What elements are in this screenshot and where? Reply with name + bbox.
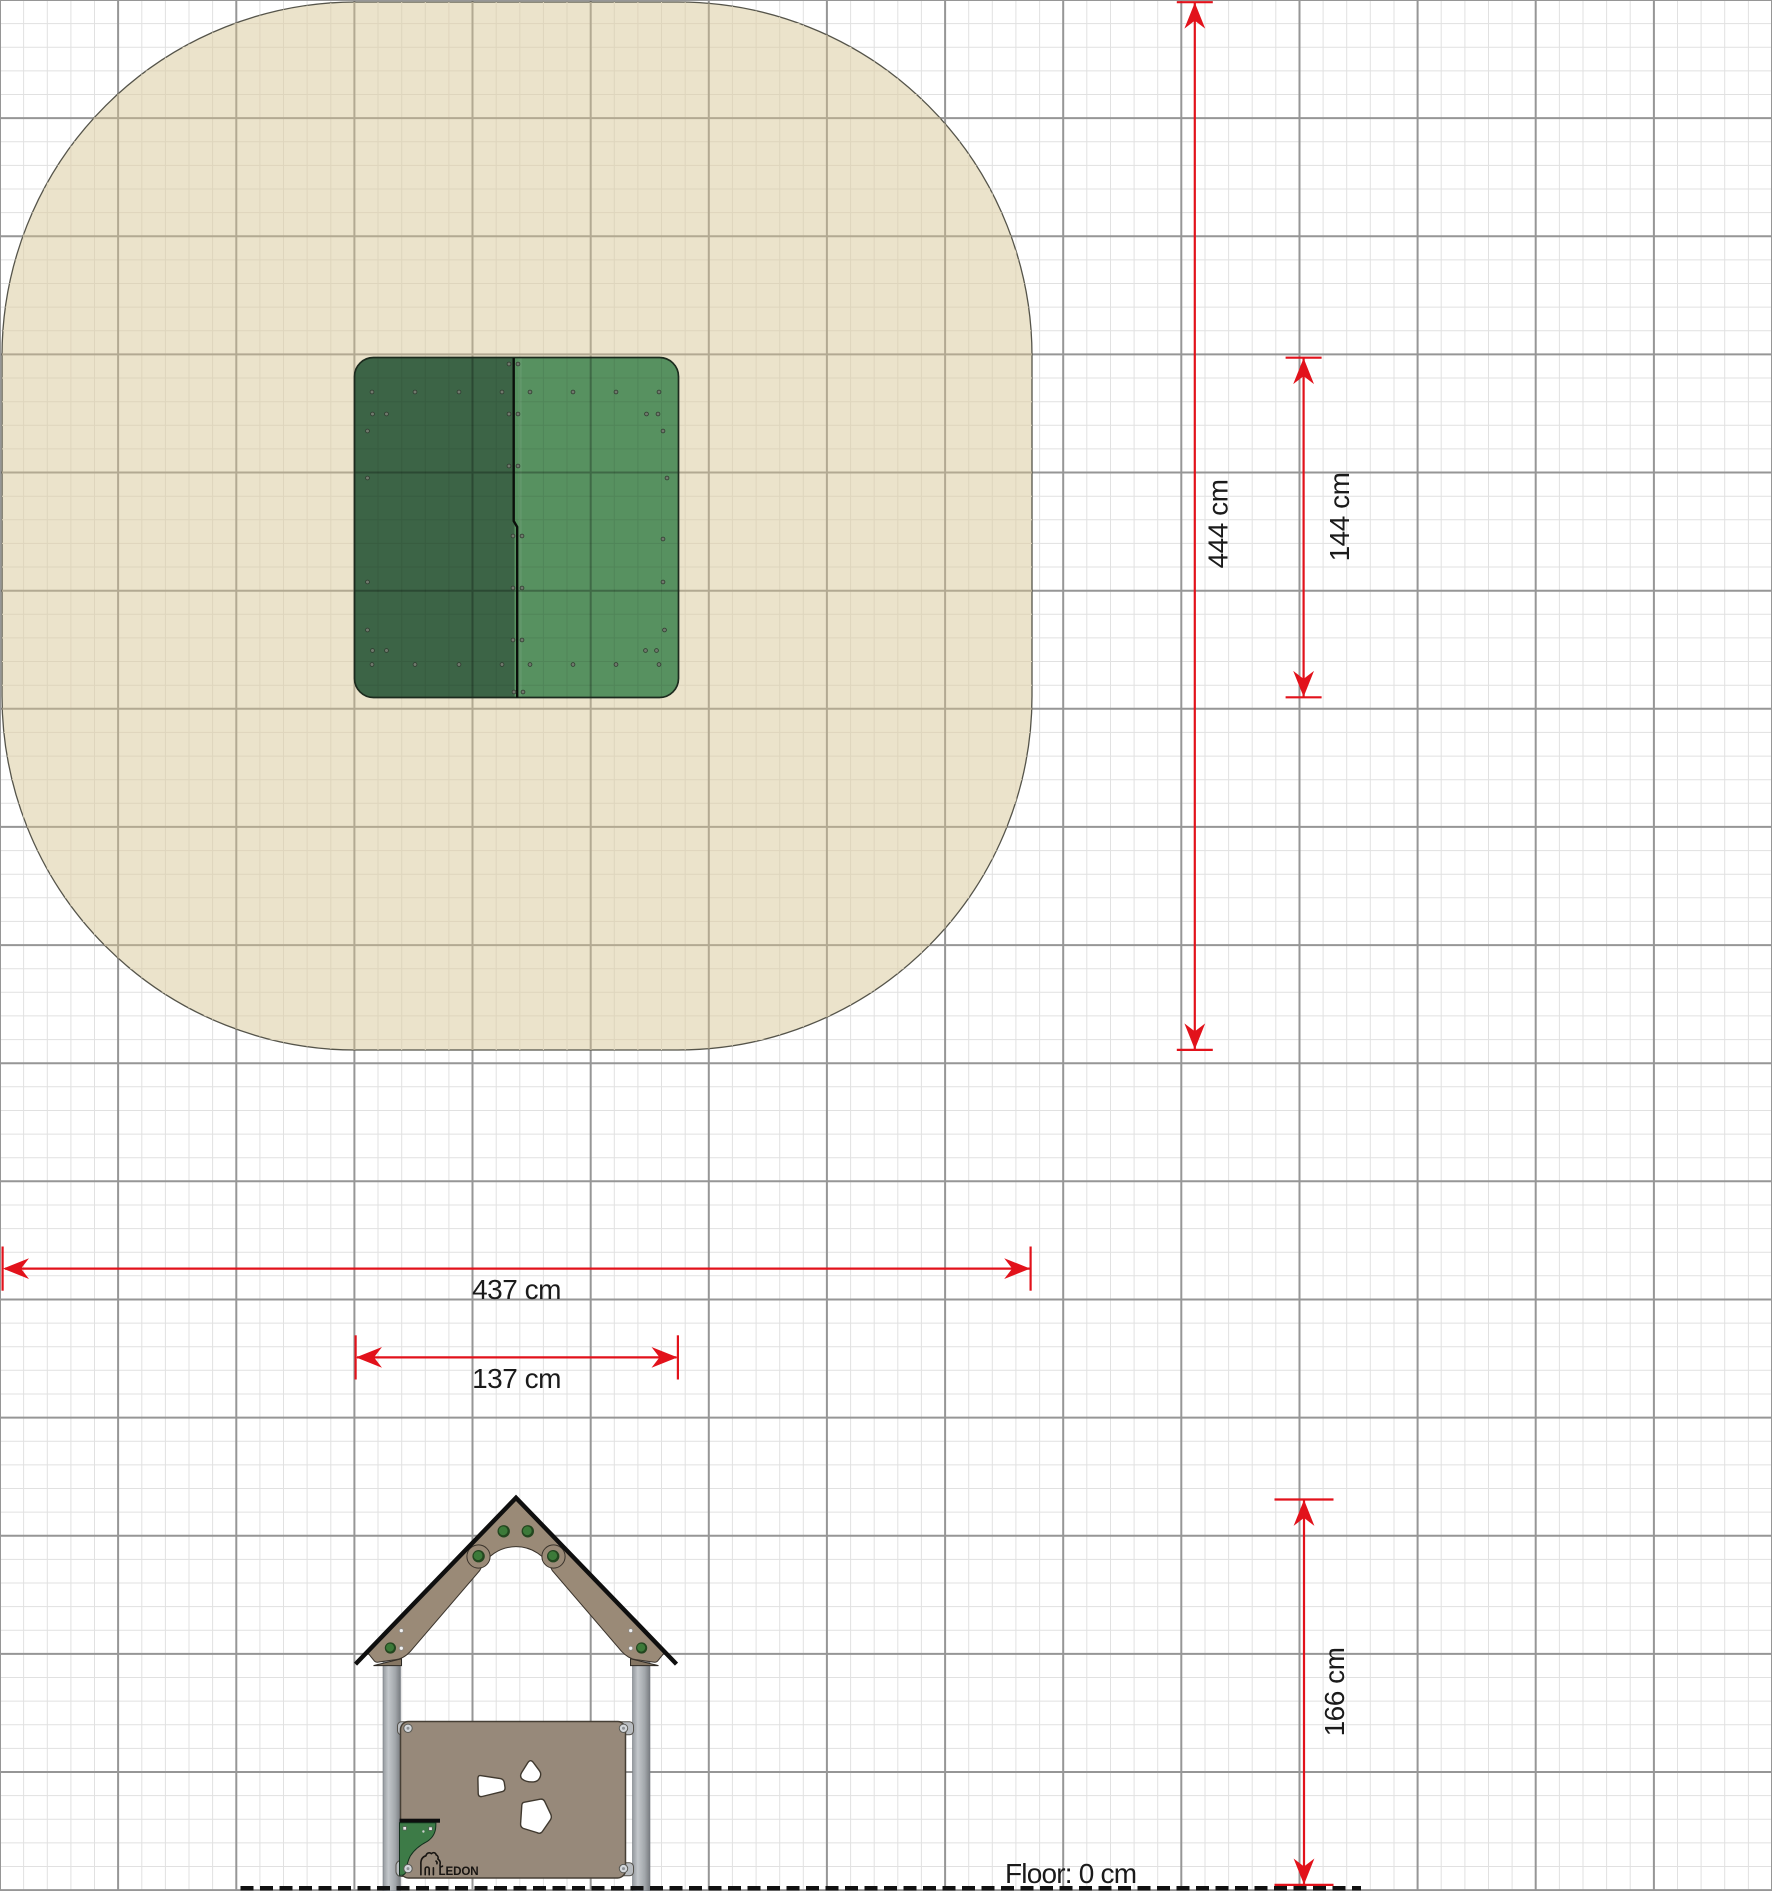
svg-text:166 cm: 166 cm xyxy=(1319,1648,1350,1737)
svg-text:444 cm: 444 cm xyxy=(1203,480,1234,569)
svg-text:437 cm: 437 cm xyxy=(472,1274,561,1305)
svg-text:137 cm: 137 cm xyxy=(472,1363,561,1394)
svg-text:Floor: 0 cm: Floor: 0 cm xyxy=(1005,1858,1136,1889)
svg-text:LEDON: LEDON xyxy=(439,1865,479,1878)
svg-text:144 cm: 144 cm xyxy=(1324,473,1355,562)
